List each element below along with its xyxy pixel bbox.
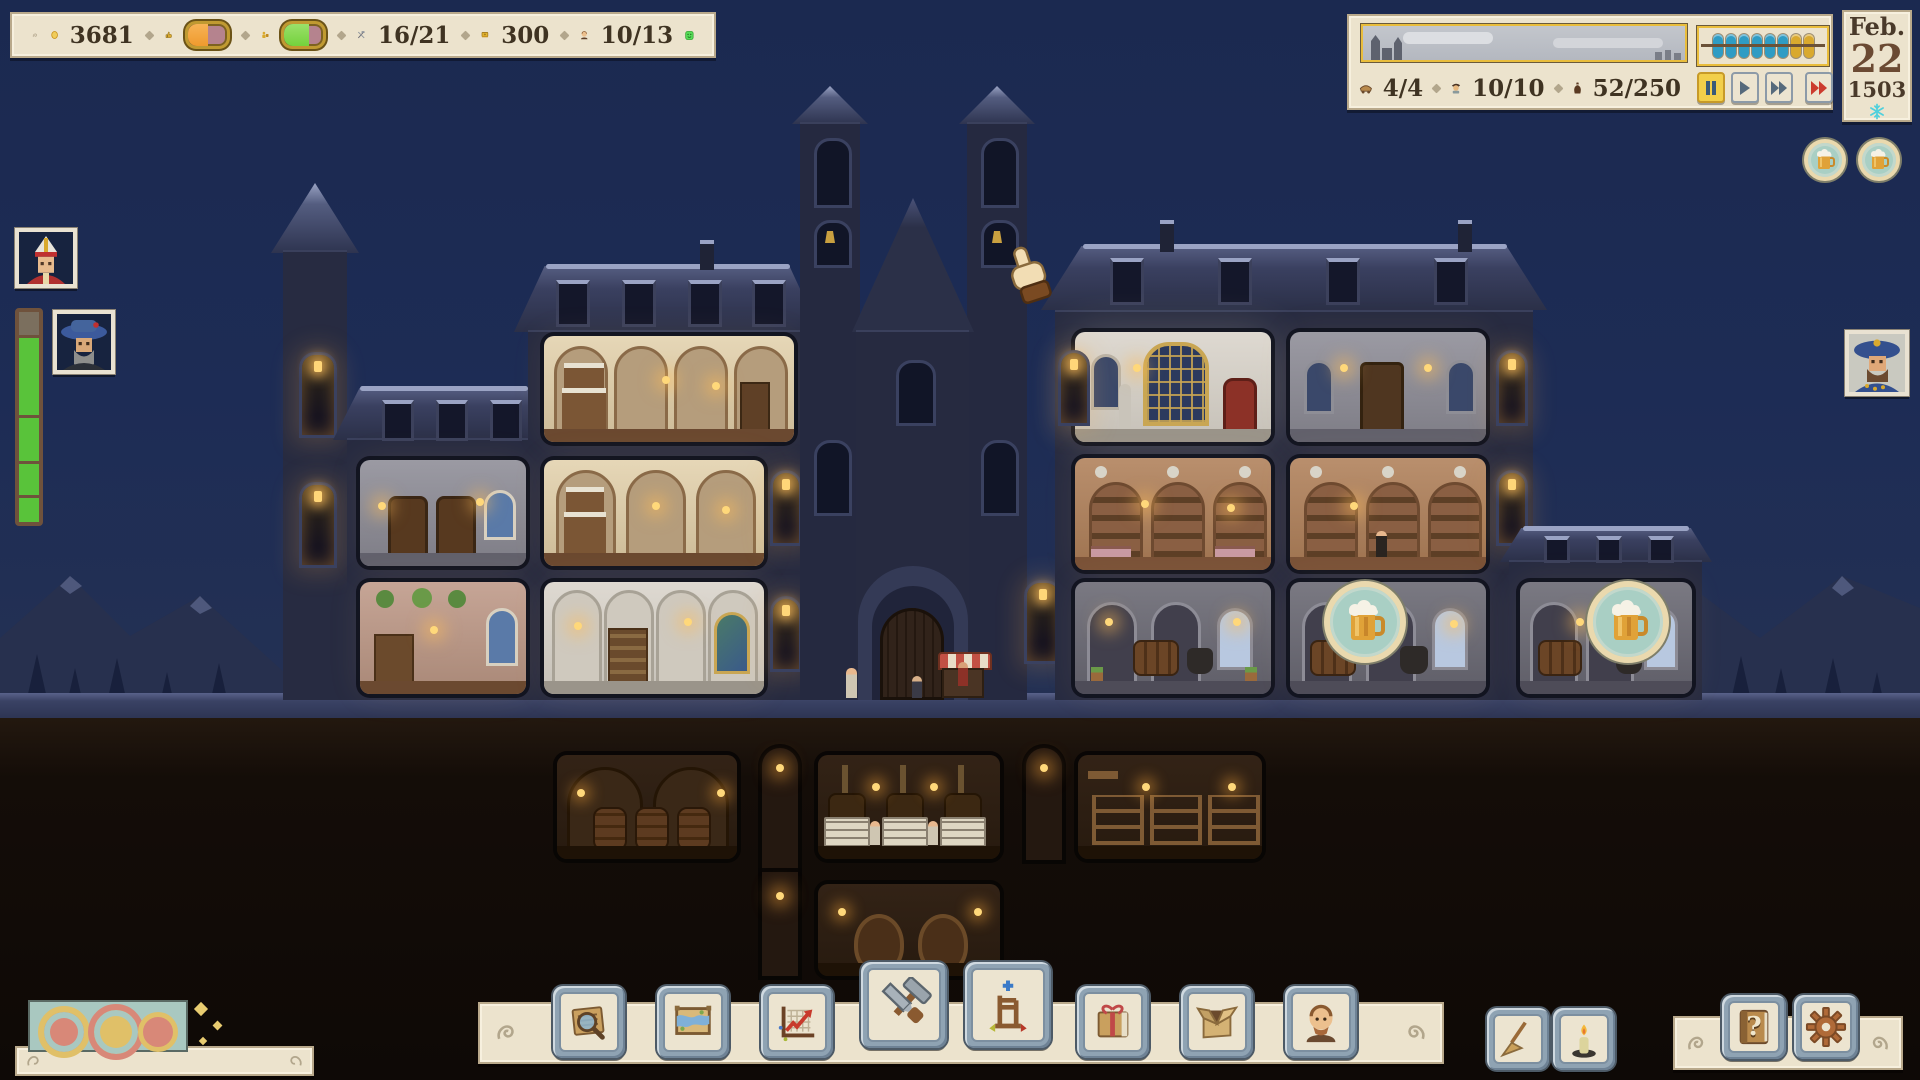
- gauge-empty-top: [19, 312, 39, 338]
- facade-window: [896, 360, 936, 426]
- celebration-splash-icon[interactable]: [28, 1000, 188, 1052]
- active-brew-token[interactable]: [1804, 139, 1846, 181]
- fermenter-label-card[interactable]: [824, 817, 870, 847]
- monk-sprite[interactable]: [846, 668, 857, 698]
- roof-ridge-snow: [1523, 526, 1689, 531]
- toolbar-statistics-button[interactable]: [761, 986, 833, 1058]
- basement-stairwell[interactable]: [762, 748, 798, 872]
- calendar-day: 22: [1851, 42, 1904, 76]
- relationship-gauge[interactable]: [15, 308, 43, 526]
- candle-button[interactable]: [1553, 1008, 1615, 1070]
- roof-ridge-snow: [546, 264, 790, 269]
- divider-diamond: [1432, 83, 1442, 93]
- basement-stairwell-lower[interactable]: [762, 872, 798, 976]
- toolbar-world-map-button[interactable]: [657, 986, 729, 1058]
- roof-ridge-snow: [1083, 244, 1507, 249]
- dormer-window: [622, 280, 656, 327]
- dormer-window: [1596, 536, 1622, 563]
- stair-window: [1496, 350, 1528, 426]
- reputation-fill: [188, 24, 208, 46]
- stair-window: [1058, 350, 1090, 426]
- monk-sprite[interactable]: [870, 821, 880, 845]
- room-chapel[interactable]: [1075, 332, 1271, 442]
- tower-window: [981, 138, 1019, 208]
- visitor-portrait-noble[interactable]: [1845, 330, 1909, 396]
- dormer-window: [1434, 258, 1468, 305]
- dormer-window: [490, 400, 522, 441]
- monk-icon: [580, 21, 589, 49]
- dormer-window: [1218, 258, 1252, 305]
- monk-sprite[interactable]: [928, 821, 938, 845]
- chimney: [700, 240, 714, 270]
- bishop-icon: [19, 232, 73, 284]
- dormer-window: [1110, 258, 1144, 305]
- dormer-window: [556, 280, 590, 327]
- toolbar-ledger-search-button[interactable]: [553, 986, 625, 1058]
- fast-forward-button[interactable]: [1765, 72, 1793, 103]
- room-scriptorium-2[interactable]: [1290, 458, 1486, 570]
- snowflake-icon: [1866, 103, 1888, 120]
- furniture-chair-icon: [980, 977, 1036, 1033]
- gold-amount: 3681: [70, 22, 134, 49]
- tower-window: [814, 138, 852, 208]
- pine-tree: [108, 658, 126, 698]
- dormer-window: [1648, 536, 1674, 563]
- help-glyph: ?: [1746, 1012, 1761, 1042]
- beer-mug-icon: [1815, 149, 1835, 171]
- merchant-sprite[interactable]: [958, 662, 968, 686]
- basement-fermentation-room[interactable]: [818, 755, 1000, 859]
- system-scroll: [1673, 1016, 1903, 1070]
- help-button[interactable]: ?: [1722, 995, 1786, 1059]
- room-scriptorium-1[interactable]: [1075, 458, 1271, 570]
- calendar-year: 1503: [1848, 77, 1906, 102]
- reputation-bar: [185, 21, 230, 49]
- gauge-divider: [19, 461, 39, 464]
- broom-icon: [1498, 1019, 1538, 1059]
- cloud: [1553, 38, 1663, 48]
- ledger-search-icon: [566, 999, 612, 1045]
- monastery-silhouette-icon: [1367, 32, 1427, 60]
- abacus-rod: [1701, 44, 1825, 47]
- active-brew-token[interactable]: [1858, 139, 1900, 181]
- toolbar-storage-button[interactable]: [1181, 986, 1253, 1058]
- tools-count: 16/21: [378, 22, 450, 49]
- tower-window: [814, 440, 852, 516]
- game-viewport: 3681 16/21 300 10/13: [0, 0, 1920, 1080]
- hand-cursor-icon: [998, 246, 1052, 306]
- candle-icon: [1564, 1019, 1604, 1059]
- tower-window: [299, 352, 337, 438]
- dormer-window: [688, 280, 722, 327]
- toolbar-monks-button[interactable]: [1285, 986, 1357, 1058]
- roof-ridge-snow: [360, 386, 528, 391]
- workforce-fill: [284, 24, 308, 46]
- divider-diamond: [1553, 83, 1563, 93]
- divider-diamond: [144, 30, 154, 40]
- villager-icon: [1450, 75, 1462, 101]
- brewing-badge-beer-mug[interactable]: [1587, 581, 1669, 663]
- advisor-portrait-bishop[interactable]: [15, 228, 77, 288]
- room-brew-cellar-1[interactable]: [1075, 582, 1271, 694]
- room-workshop[interactable]: [360, 460, 526, 566]
- room-greenhouse-tavern[interactable]: [360, 582, 526, 694]
- toolbar-furniture-button[interactable]: [965, 962, 1051, 1048]
- book-icon: [481, 23, 489, 47]
- wrapped-package-icon: [1090, 999, 1136, 1045]
- toolbar-package-button[interactable]: [1077, 986, 1149, 1058]
- dormer-window: [752, 280, 786, 327]
- town-counts-row: 4/4 10/10 52/250: [1359, 68, 1681, 108]
- books-count: 300: [501, 22, 549, 49]
- settings-gear-icon: [1805, 1006, 1847, 1048]
- beer-mug-icon: [1345, 600, 1385, 644]
- divider-diamond: [337, 30, 347, 40]
- stair-window: [770, 596, 802, 672]
- gauge-divider: [19, 495, 39, 498]
- scroll-ornament-icon: [32, 25, 39, 45]
- villager-sprite[interactable]: [912, 676, 922, 698]
- toolbar-construction-button[interactable]: [861, 962, 947, 1048]
- pause-button[interactable]: [1697, 72, 1725, 103]
- max-speed-button[interactable]: [1805, 72, 1833, 103]
- world-map-icon: [670, 999, 716, 1045]
- speed-controls: [1697, 72, 1833, 104]
- scroll-ornament-icon: [25, 1051, 43, 1069]
- monk-roster-icon: [1298, 999, 1344, 1045]
- statistics-chart-icon: [774, 999, 820, 1045]
- basement-barrel-cellar[interactable]: [557, 755, 737, 859]
- room-dormitory-lower[interactable]: [544, 460, 764, 566]
- dormer-window: [1544, 536, 1570, 563]
- wagons-count: 4/4: [1383, 75, 1423, 102]
- pine-tree: [1824, 658, 1842, 698]
- room-library[interactable]: [544, 582, 764, 694]
- room-storeroom[interactable]: [1290, 332, 1486, 442]
- scroll-ornament-icon: [286, 1051, 304, 1069]
- play-button[interactable]: [1731, 72, 1759, 103]
- brewing-badge-beer-mug[interactable]: [1324, 581, 1406, 663]
- pine-tree: [1732, 656, 1750, 696]
- left-tower[interactable]: [283, 250, 347, 700]
- bell-tower-right[interactable]: [967, 122, 1027, 700]
- construction-tools-icon: [876, 977, 932, 1033]
- fermenter-label-card[interactable]: [882, 817, 928, 847]
- dormer-window: [436, 400, 468, 441]
- advisor-portrait-noble[interactable]: [53, 310, 115, 374]
- open-box-icon: [1194, 999, 1240, 1045]
- monks-count: 10/13: [601, 22, 673, 49]
- thumbs-up-icon: [165, 23, 173, 47]
- scroll-ornament-icon: [1867, 1030, 1891, 1054]
- dormer-window: [382, 400, 414, 441]
- beer-mug-icon: [1869, 149, 1889, 171]
- gauge-divider: [19, 415, 39, 418]
- fermenter-label-card[interactable]: [940, 817, 986, 847]
- tower-window: [981, 440, 1019, 516]
- scroll-ornament-icon: [1402, 1018, 1428, 1044]
- basement-shelf-room[interactable]: [1078, 755, 1262, 859]
- chimney: [1160, 220, 1174, 252]
- divider-diamond: [461, 30, 471, 40]
- divider-diamond: [560, 30, 570, 40]
- broom-button[interactable]: [1487, 1008, 1549, 1070]
- statue: [1119, 384, 1131, 428]
- workforce-bar: [281, 21, 326, 49]
- scroll-ornament-icon: [494, 1018, 520, 1044]
- bell-niche: [814, 220, 852, 268]
- scroll-ornament-icon: [1685, 1030, 1709, 1054]
- calendar-card: Feb. 22 1503: [1842, 10, 1912, 122]
- settings-button[interactable]: [1794, 995, 1858, 1059]
- abacus-gauge[interactable]: [1697, 26, 1829, 66]
- pine-tree: [28, 654, 46, 694]
- sack-icon: [1572, 74, 1583, 102]
- noble-blue-beret-icon: [1849, 334, 1905, 392]
- villagers-count: 10/10: [1472, 75, 1544, 102]
- beer-mug-icon: [1608, 600, 1648, 644]
- town-skyline-meter[interactable]: [1361, 24, 1687, 62]
- stair-window: [770, 470, 802, 546]
- gold-coin-icon: [51, 22, 58, 48]
- noble-blue-hat-icon: [57, 314, 111, 370]
- chimney: [1458, 220, 1472, 252]
- storage-count: 52/250: [1593, 75, 1681, 102]
- dormer-window: [1326, 258, 1360, 305]
- village-silhouette-icon: [1653, 44, 1683, 60]
- worker-icon: [261, 23, 270, 47]
- bell-tower-left[interactable]: [800, 122, 860, 700]
- monk-sprite[interactable]: [1376, 531, 1387, 557]
- tower-window: [299, 482, 337, 568]
- tools-icon: [357, 22, 366, 48]
- resources-bar: 3681 16/21 300 10/13: [10, 12, 716, 58]
- wagon-icon: [1359, 75, 1373, 101]
- pine-tree: [211, 663, 226, 697]
- happy-face-icon: [685, 22, 694, 49]
- red-door: [1223, 378, 1257, 436]
- divider-diamond: [240, 30, 250, 40]
- basement-stairwell[interactable]: [1026, 748, 1062, 860]
- town-panel: 4/4 10/10 52/250: [1347, 14, 1833, 110]
- room-dormitory-upper[interactable]: [544, 336, 794, 442]
